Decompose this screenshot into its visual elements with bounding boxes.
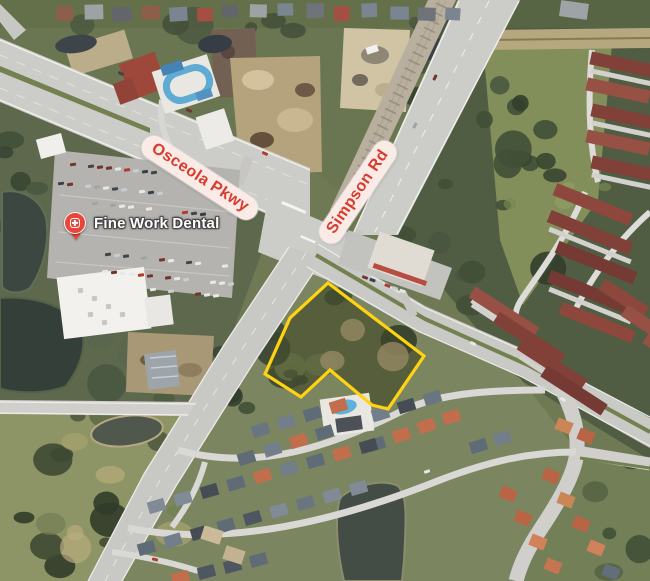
pin-pointer	[71, 233, 81, 240]
satellite-imagery	[0, 0, 650, 581]
map-canvas[interactable]: Osceola Pkwy Simpson Rd Fine Work Dental	[0, 0, 650, 581]
poi-fine-work-dental[interactable]: Fine Work Dental	[64, 212, 219, 235]
medical-cross-icon	[70, 218, 80, 228]
medical-pin-icon[interactable]	[64, 212, 87, 235]
poi-label: Fine Work Dental	[94, 215, 219, 232]
